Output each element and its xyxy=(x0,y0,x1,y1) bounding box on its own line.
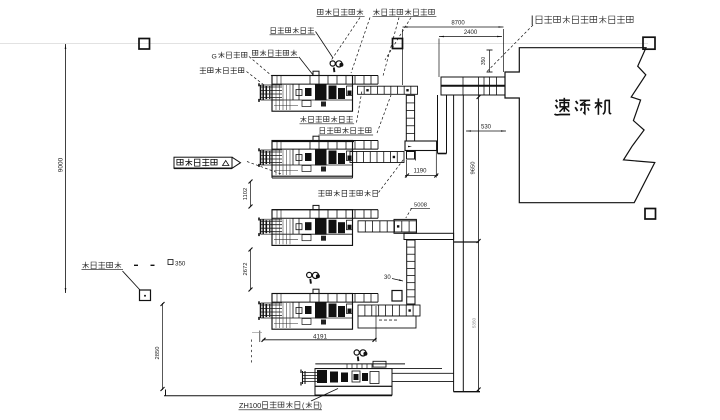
svg-text:9650: 9650 xyxy=(471,162,477,175)
svg-text:2850: 2850 xyxy=(155,347,161,360)
svg-text:2400: 2400 xyxy=(464,30,478,36)
svg-text:5350: 5350 xyxy=(472,317,477,328)
svg-text:): ) xyxy=(320,403,322,410)
svg-text:1102: 1102 xyxy=(243,188,249,200)
svg-text:30: 30 xyxy=(384,275,391,281)
svg-text:5008: 5008 xyxy=(414,203,427,209)
svg-text:G: G xyxy=(212,54,217,61)
svg-text:ZH100: ZH100 xyxy=(239,401,261,410)
svg-text:1190: 1190 xyxy=(414,169,428,175)
svg-text:4191: 4191 xyxy=(313,334,328,341)
svg-text:350: 350 xyxy=(175,261,186,268)
svg-text:2672: 2672 xyxy=(243,263,249,276)
svg-text:8700: 8700 xyxy=(451,20,465,26)
svg-text:9000: 9000 xyxy=(58,157,65,172)
svg-text:530: 530 xyxy=(481,125,492,131)
svg-text:350: 350 xyxy=(481,57,487,66)
